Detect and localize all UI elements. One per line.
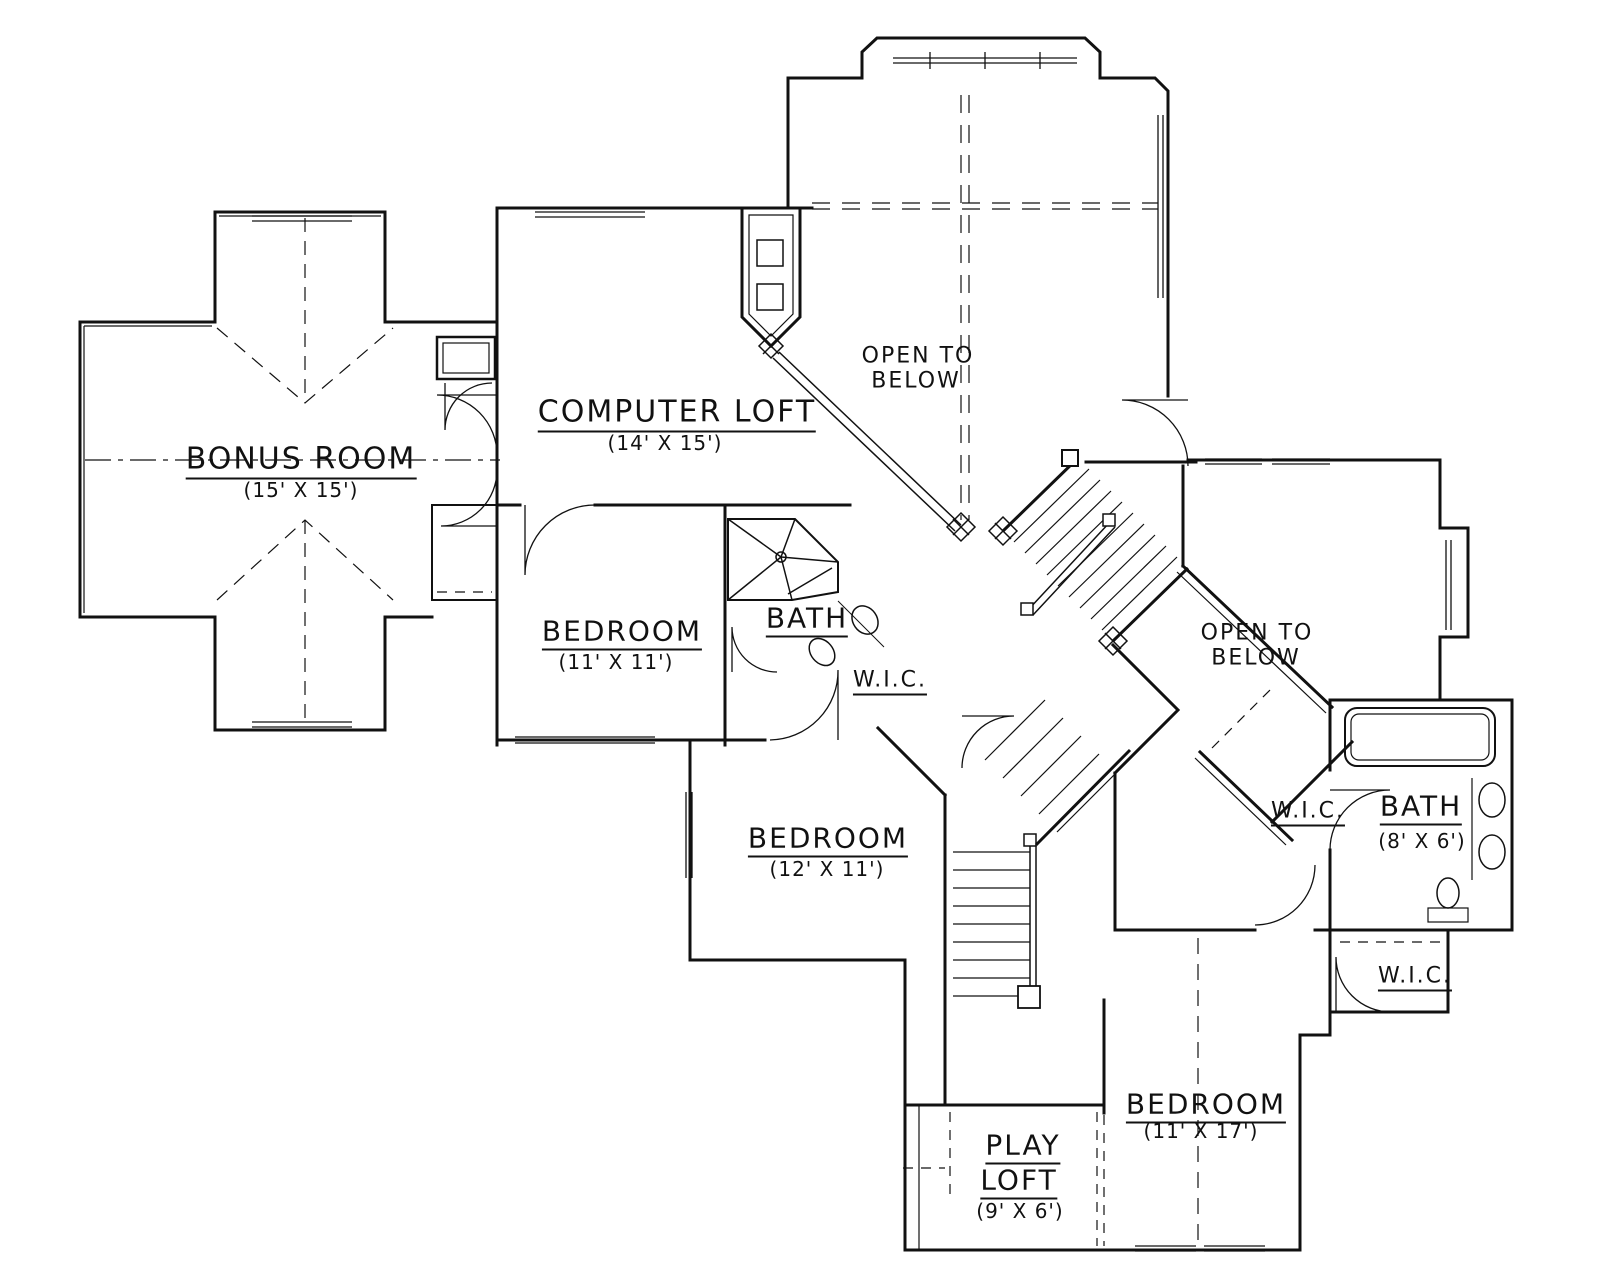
- open-below-right-label: OPEN TO: [1201, 621, 1314, 646]
- vanity-sinks: [1472, 778, 1505, 880]
- bedroom-12x11-label: BEDROOM: [748, 822, 908, 855]
- hall-door: [441, 470, 497, 526]
- bath-right-label: BATH: [1380, 790, 1462, 823]
- flue: [757, 240, 783, 266]
- floor-plan-linework: [0, 0, 1600, 1280]
- wic-lower-label: W.I.C.: [1378, 964, 1452, 989]
- staircase-lower: [953, 700, 1130, 1008]
- play-loft-dims: (9' X 6'): [976, 1199, 1063, 1223]
- bathtub: [1345, 708, 1495, 766]
- bedroom-11x11-dims: (11' X 11'): [559, 650, 674, 674]
- bonus-room-label: BONUS ROOM: [186, 442, 417, 477]
- closet-door: [445, 383, 492, 430]
- stair-center-rail: [1028, 522, 1115, 615]
- play-loft-label2: LOFT: [980, 1164, 1057, 1197]
- stair-treads: [1014, 469, 1177, 630]
- hall-lower-door: [962, 716, 1014, 768]
- play-loft-label: PLAY: [985, 1129, 1060, 1162]
- wic-upper-label: W.I.C.: [853, 668, 927, 693]
- bonus-room-dims: (15' X 15'): [244, 478, 359, 502]
- wic-right-label: W.I.C.: [1271, 799, 1345, 824]
- open-below-top-label: OPEN TO: [862, 344, 975, 369]
- balcony-door: [1122, 400, 1188, 466]
- bedroom-11x17-label: BEDROOM: [1126, 1088, 1286, 1121]
- floor-plan-canvas: BONUS ROOM (15' X 15') COMPUTER LOFT (14…: [0, 0, 1600, 1280]
- bedroom-11x17-dims: (11' X 17'): [1144, 1119, 1259, 1143]
- staircase-main: [989, 450, 1188, 655]
- bedroom3-door: [1255, 865, 1315, 925]
- bath-right-dims: (8' X 6'): [1378, 829, 1465, 853]
- bedroom1-door: [525, 505, 595, 575]
- corner-shower: [728, 519, 838, 600]
- open-below-right-label2: BELOW: [1211, 646, 1301, 671]
- newel-post: [1062, 450, 1078, 466]
- computer-loft-label: COMPUTER LOFT: [538, 395, 816, 430]
- stair-treads-lower: [953, 700, 1117, 996]
- computer-loft-dims: (14' X 15'): [608, 431, 723, 455]
- chimney: [742, 208, 800, 346]
- door-swings: [437, 383, 1391, 1012]
- bath-upper-label: BATH: [766, 602, 848, 635]
- toilet: [804, 633, 840, 670]
- stair-rail-lower: [1030, 846, 1036, 992]
- bedroom-11x11-label: BEDROOM: [542, 615, 702, 648]
- toilet-right: [1428, 878, 1468, 922]
- flue: [757, 284, 783, 310]
- open-below-top-label2: BELOW: [871, 369, 961, 394]
- bedroom-12x11-dims: (12' X 11'): [770, 857, 885, 881]
- bonus-room-door: [437, 395, 497, 455]
- hall-closets: [432, 337, 497, 600]
- bedroom2-door: [770, 670, 838, 740]
- dashed-roof-lines: [85, 95, 1440, 1246]
